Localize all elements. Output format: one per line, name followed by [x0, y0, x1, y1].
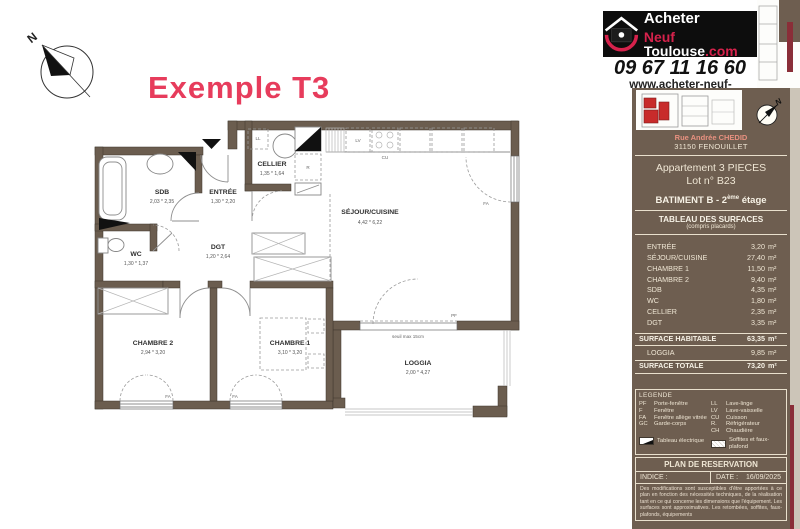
house-icon: [603, 13, 640, 55]
north-label: N: [25, 30, 40, 46]
mini-north-arrow-icon: N: [753, 96, 785, 128]
toilet-tank-icon: [98, 238, 108, 253]
legend-soffit-label: Soffites et faux-plafond: [729, 437, 783, 451]
table-row: SDB4,35m²: [632, 285, 790, 296]
address-city: 31150 FENOUILLET: [632, 142, 790, 151]
room-label-entree: ENTRÉE: [209, 187, 237, 196]
logo: Acheter Neuf Toulouse.com: [603, 11, 757, 57]
label-pf: PF: [451, 313, 457, 318]
table-row: CHAMBRE 111,50m²: [632, 264, 790, 275]
date-value: 16/09/2025: [746, 474, 781, 481]
divider: [635, 210, 787, 211]
surfaces-table-title: TABLEAU DES SURFACES: [632, 215, 790, 224]
washing-machine-icon: [273, 134, 297, 158]
reservation-title: PLAN DE RESERVATION: [635, 457, 787, 472]
legend-col1: PFPorte-fenêtre FFenêtre FAFenêtre allèg…: [639, 401, 711, 451]
page: N Exemple T3: [0, 0, 800, 529]
room-labels: SDB 2,03 * 2,35 ENTRÉE 1,30 * 2,20 CELLI…: [124, 161, 432, 376]
room-label-chambre1: CHAMBRE 1: [270, 340, 311, 347]
indice-label: INDICE :: [636, 472, 711, 483]
label-fa-left: FA: [165, 394, 172, 399]
fixtures: [98, 127, 510, 370]
svg-text:N: N: [773, 97, 783, 108]
label-cu: CU: [382, 155, 389, 160]
address-street: Rue Andrée CHEDID: [632, 133, 790, 142]
room-label-chambre2: CHAMBRE 2: [133, 340, 174, 347]
room-dims-wc: 1,30 * 1,37: [124, 261, 148, 267]
page-title: Exemple T3: [148, 70, 330, 106]
apartment-type: Appartement 3 PIECES: [632, 162, 790, 174]
legend: LEGENDE PFPorte-fenêtre FFenêtre FAFenêt…: [635, 389, 787, 455]
table-row: CELLIER2,35m²: [632, 307, 790, 318]
kitchen-sink-hatch: [326, 128, 344, 152]
table-row: ENTRÉE3,20m²: [632, 242, 790, 253]
indice-date-row: INDICE : DATE :16/09/2025: [635, 471, 787, 484]
site-plan-row: N: [632, 88, 790, 130]
floor-plan: SDB 2,03 * 2,35 ENTRÉE 1,30 * 2,20 CELLI…: [88, 102, 533, 442]
site-plan-thumbnail: [636, 90, 742, 130]
info-panel: N Rue Andrée CHEDID 31150 FENOUILLET App…: [632, 88, 790, 529]
lot-number: Lot n° B23: [632, 175, 790, 187]
building-floor: BATIMENT B - 2ème étage: [632, 195, 790, 206]
room-label-sdb: SDB: [155, 189, 169, 196]
divider: [635, 234, 787, 235]
disclaimer-text: Des modifications sont susceptibles d'êt…: [635, 483, 787, 522]
room-dims-cellier: 1,35 * 1,64: [260, 171, 284, 177]
label-r: R: [306, 165, 310, 170]
room-dims-loggia: 2,00 * 4,27: [406, 370, 430, 376]
loggia-row: LOGGIA9,85m²: [632, 348, 790, 359]
sink-icon: [147, 154, 173, 174]
label-lv: LV: [355, 138, 361, 143]
surface-totale-row: SURFACE TOTALE73,20m²: [632, 361, 790, 372]
label-fa-right: FA: [483, 201, 490, 206]
label-seuil: seuil max 15cm: [392, 334, 424, 339]
room-dims-entree: 1,30 * 2,20: [211, 199, 235, 205]
label-ll: LL: [255, 136, 261, 141]
table-row: WC1,80m²: [632, 296, 790, 307]
north-compass-icon: N: [18, 20, 108, 110]
entrance-arrow-icon: [202, 139, 221, 149]
room-dims-sdb: 2,03 * 2,35: [150, 199, 174, 205]
table-row: SÉJOUR/CUISINE27,40m²: [632, 253, 790, 264]
table-row: DGT3,35m²: [632, 318, 790, 329]
phone-number: 09 67 11 16 60: [600, 57, 760, 80]
cooktop-box: [372, 128, 398, 152]
room-label-sejour: SÉJOUR/CUISINE: [341, 207, 399, 216]
legend-elec-label: Tableau électrique: [657, 438, 704, 445]
room-label-loggia: LOGGIA: [405, 360, 432, 367]
room-dims-chambre1: 3,10 * 3,20: [278, 350, 302, 356]
surfaces-table-subtitle: (compris placards): [632, 224, 790, 230]
table-row: CHAMBRE 29,40m²: [632, 275, 790, 286]
room-dims-chambre2: 2,94 * 3,20: [141, 350, 165, 356]
room-dims-dgt: 1,20 * 2,64: [206, 254, 230, 260]
divider: [635, 155, 787, 156]
logo-line1: Acheter: [644, 11, 757, 26]
room-label-dgt: DGT: [211, 244, 226, 251]
room-dims-sejour: 4,42 * 6,22: [358, 220, 382, 226]
date-label: DATE :: [716, 474, 738, 481]
electric-board-symbol: [639, 437, 654, 445]
room-label-wc: WC: [130, 251, 141, 258]
surface-habitable-row: SURFACE HABITABLE63,35m²: [632, 334, 790, 345]
site-plan-fragment: [757, 0, 800, 88]
legend-title: LEGENDE: [639, 392, 783, 399]
room-label-cellier: CELLIER: [257, 161, 286, 168]
soffit-symbol: [711, 440, 726, 448]
legend-col2: LLLave-linge LVLave-vaisselle CUCuisson …: [711, 401, 783, 451]
surfaces-table: ENTRÉE3,20m² SÉJOUR/CUISINE27,40m² CHAMB…: [632, 242, 790, 328]
toilet-icon: [108, 239, 124, 252]
label-fa-mid: FA: [232, 394, 239, 399]
